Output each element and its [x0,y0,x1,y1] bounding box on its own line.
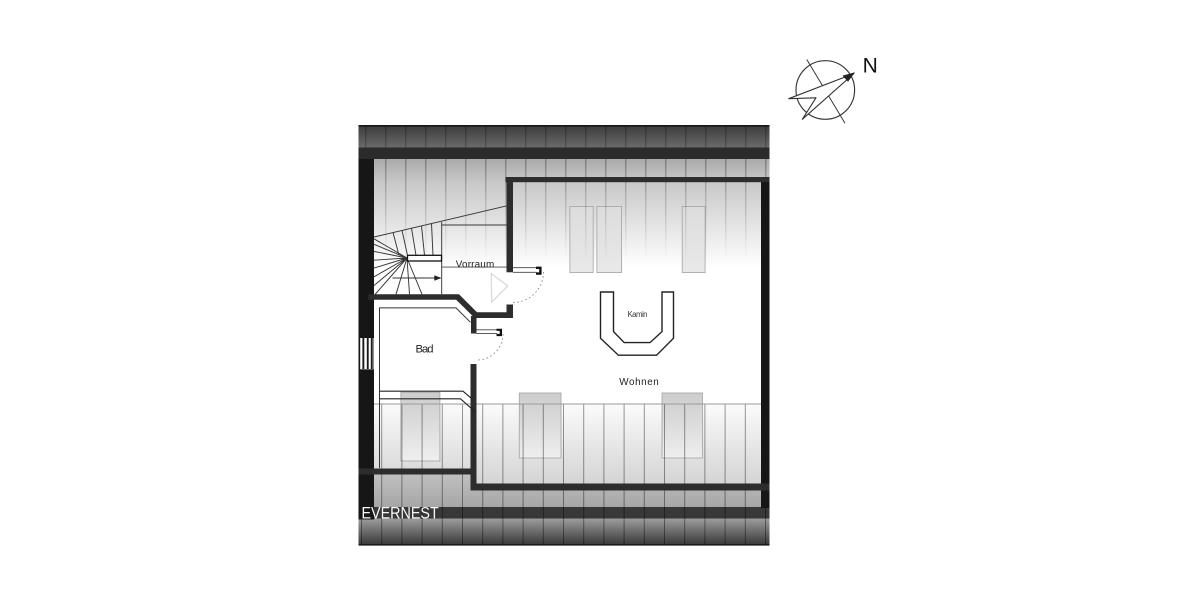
svg-text:Wohnen: Wohnen [619,377,659,388]
svg-text:Vorraum: Vorraum [456,260,494,271]
svg-text:N: N [863,54,878,77]
svg-text:EVERNEST: EVERNEST [362,504,439,523]
svg-text:Kamin: Kamin [628,310,648,319]
svg-text:Bad: Bad [416,343,434,355]
